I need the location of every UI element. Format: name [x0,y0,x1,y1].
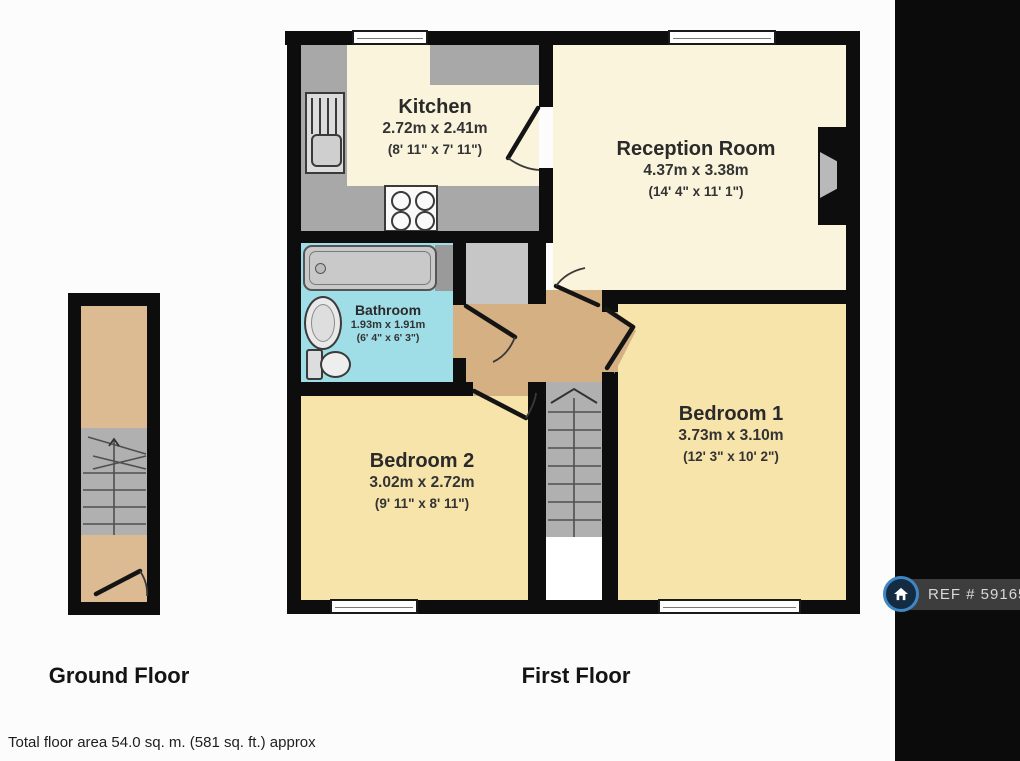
bathtub-ledge [435,245,453,291]
sink-drainer [311,98,339,134]
room-name: Bedroom 2 [369,450,474,472]
wall [453,358,466,382]
wash-basin [304,296,342,350]
room-name: Kitchen [382,96,487,118]
wall [287,382,473,396]
stairwell-void [546,537,602,600]
room-dims-imperial: (12' 3" x 10' 2") [678,447,783,467]
kitchen-sink-unit [305,92,345,174]
sink-basin [311,134,342,167]
wall [453,231,466,305]
room-dims-metric: 3.73m x 3.10m [678,425,783,447]
room-dims-metric: 4.37m x 3.38m [617,160,776,182]
burner [415,211,435,231]
burner [415,191,435,211]
wall [301,231,553,243]
first-floor-label: First Floor [522,663,631,689]
window-seam [663,607,796,608]
burner [391,211,411,231]
kitchen-counter-topright [430,45,539,85]
ground-floor-label: Ground Floor [49,663,190,689]
total-area-note: Total floor area 54.0 sq. m. (581 sq. ft… [8,734,316,751]
wall [846,31,860,614]
wall [614,290,860,304]
landing-doorway-bedroom2 [473,382,528,396]
house-icon [893,587,909,601]
room-dims-metric: 3.02m x 2.72m [369,472,474,494]
wall [602,372,618,614]
room-name: Bathroom [351,302,426,318]
wall [602,290,618,312]
room-dims-imperial: (6' 4" x 6' 3") [351,332,426,345]
window [330,599,418,614]
window [352,30,428,45]
room-dims-metric: 2.72m x 2.41m [382,118,487,140]
hob [384,185,438,232]
bedroom2-label: Bedroom 2 3.02m x 2.72m (9' 11" x 8' 11"… [369,450,474,514]
room-dims-imperial: (14' 4" x 11' 1") [617,182,776,202]
room-name: Reception Room [617,138,776,160]
sidebar-black-panel [895,0,1020,761]
room-dims-imperial: (9' 11" x 8' 11") [369,494,474,514]
reception-label: Reception Room 4.37m x 3.38m (14' 4" x 1… [617,138,776,202]
kitchen-label: Kitchen 2.72m x 2.41m (8' 11" x 7' 11") [382,96,487,160]
wall [528,243,546,304]
room-dims-imperial: (8' 11" x 7' 11") [382,140,487,160]
bedroom1-label: Bedroom 1 3.73m x 3.10m (12' 3" x 10' 2"… [678,403,783,467]
floorplan-page: REF # 591650 [0,0,1020,761]
window-seam [673,38,771,39]
bathtub [303,245,437,291]
bathroom-label: Bathroom 1.93m x 1.91m (6' 4" x 6' 3") [351,302,426,345]
cupboard-block [465,243,528,304]
landing-hall [453,304,618,382]
bathtub-inner [309,251,431,285]
bathtub-drain [315,263,326,274]
ref-text: REF # 591650 [928,586,1020,603]
room-name: Bedroom 1 [678,403,783,425]
first-floor-stairs [546,382,602,537]
window-seam [335,607,413,608]
wash-basin-inner [311,304,335,342]
wall [287,31,301,614]
room-dims-metric: 1.93m x 1.91m [351,318,426,332]
window [658,599,801,614]
wall [539,45,553,107]
toilet-bowl [320,351,351,378]
window [668,30,776,45]
window-seam [357,38,423,39]
wall [528,382,546,600]
ground-floor-stairs [81,428,147,535]
agency-logo [883,576,919,612]
burner [391,191,411,211]
